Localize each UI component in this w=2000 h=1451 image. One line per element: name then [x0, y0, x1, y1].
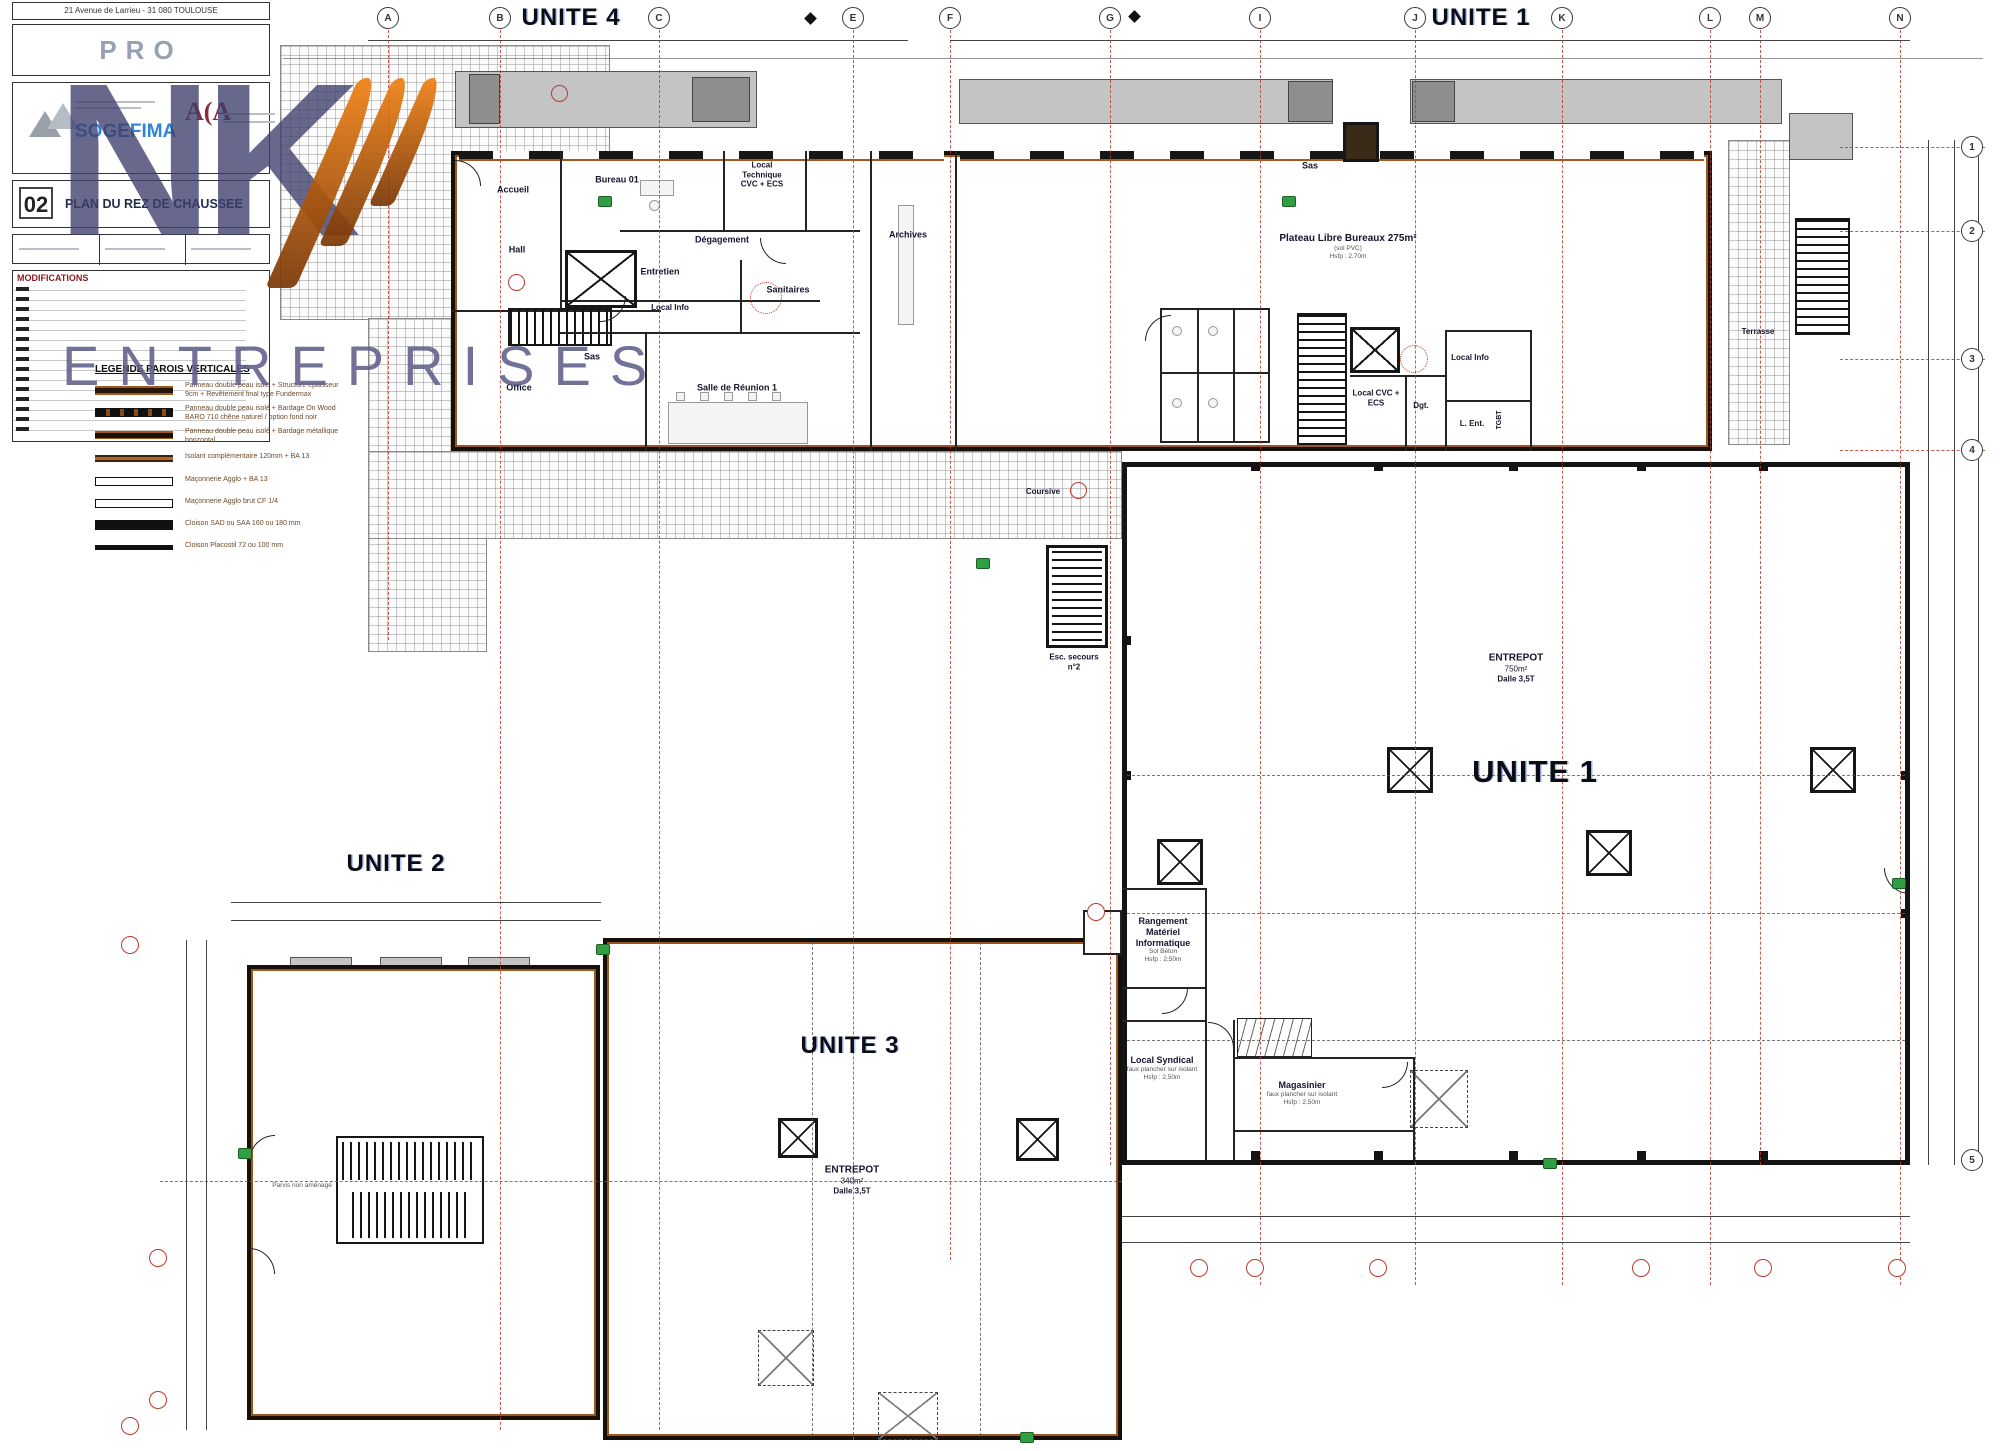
gridline-N [1900, 30, 1901, 1285]
elevator-shaft-unite1 [1350, 327, 1400, 373]
canopy-unite4-detail2 [692, 77, 750, 122]
field-line [19, 248, 79, 250]
dim-line [231, 920, 601, 921]
unite1-title-hall: UNITE 1 [1472, 754, 1598, 790]
canopy-unite1-east [1410, 79, 1782, 124]
archives-shelf [898, 205, 914, 325]
gridline-B [500, 30, 501, 1430]
gridline-warehouse-h3 [1127, 1040, 1905, 1041]
wc-fixture [1172, 326, 1182, 336]
logo-text-line [75, 107, 141, 109]
logo-text-line [75, 101, 155, 103]
room-label-sanitaires: Sanitaires [756, 285, 820, 296]
room-label-l-ent: L. Ent. [1451, 419, 1493, 429]
partition-archives-east [955, 151, 957, 451]
legend-label: Maçonnerie Agglo brut CF 1/4 [185, 498, 350, 507]
canopy-unite4-detail [469, 74, 500, 124]
partition [1405, 375, 1407, 451]
plateau-name: Plateau Libre Bureaux 275m² [1279, 233, 1416, 244]
wc-partition [1197, 308, 1199, 443]
axis-bubble [1888, 1259, 1906, 1277]
grid-bubble-right: 3 [1961, 348, 1983, 370]
stair-unite1 [1297, 313, 1347, 445]
dim-line [186, 940, 187, 1430]
entrepot-u3-name: ENTREPOT [825, 1164, 879, 1175]
legend-swatch-agglo-ba13 [95, 477, 173, 486]
legend-swatch-panneau-onwood [95, 408, 173, 417]
partition [805, 151, 807, 231]
skylight-u1 [1586, 830, 1632, 876]
room-label-magasinier: Magasinier faux plancher sur isolant Hsf… [1257, 1080, 1347, 1106]
room-label-dgt: Dgt. [1406, 401, 1436, 411]
axis-bubble [149, 1249, 167, 1267]
axis-bubble [1369, 1259, 1387, 1277]
gridline-L [1710, 30, 1711, 1285]
titleblock-sheet: 02 PLAN DU REZ DE CHAUSSEE [12, 180, 270, 228]
partition [1445, 330, 1532, 332]
partition [1445, 400, 1530, 402]
dim-line [206, 940, 207, 1430]
dim-line [368, 40, 908, 41]
canopy-terrace [1789, 113, 1853, 160]
grid-bubble-top: F [939, 7, 961, 29]
skylight-u3 [1016, 1118, 1059, 1161]
axis-bubble [1190, 1259, 1208, 1277]
legend-swatch-panneau-metal [95, 431, 173, 439]
gridline-G [1110, 30, 1111, 1165]
titleblock-phase: PRO [12, 24, 270, 76]
escape-stair-steps [1052, 551, 1102, 642]
sheet-number: 02 [19, 187, 53, 219]
legend-swatch-isolant [95, 455, 173, 462]
ramp-hatched [1237, 1018, 1312, 1057]
dim-line [1122, 1242, 1910, 1243]
gridline-u3-v2 [980, 942, 981, 1436]
wc-partition [1160, 372, 1270, 374]
partition [1350, 375, 1447, 377]
entrepot-u3-label: ENTREPOT 340m² Dalle 3,5T [797, 1164, 907, 1195]
wc-partition [1233, 308, 1235, 443]
rangement-sub2: Hsfp : 2,50m [1124, 956, 1202, 964]
room-label-esc-secours: Esc. secours n°2 [1042, 652, 1106, 671]
entrepot-u1-slab: Dalle 3,5T [1461, 674, 1571, 684]
door-tag [1892, 878, 1906, 889]
legend-swatch-agglo-brut [95, 499, 173, 508]
dim-line [231, 902, 601, 903]
gridline-J [1415, 30, 1416, 1285]
magasinier-sub2: Hsfp : 2,50m [1257, 1098, 1347, 1106]
wc-fixture [1208, 326, 1218, 336]
room-label-parvis: Parvis non aménagé [267, 1182, 337, 1190]
room-label-plateau: Plateau Libre Bureaux 275m² (sol PVC) Hs… [1263, 233, 1433, 261]
plateau-sub2: Hsfp : 2,70m [1263, 253, 1433, 261]
entrepot-u1-area: 750m² [1461, 664, 1571, 674]
axis-bubble [149, 1391, 167, 1409]
room-label-coursive: Coursive [1013, 487, 1073, 497]
canopy-unite1-west [959, 79, 1333, 124]
plateau-sub1: (sol PVC) [1263, 245, 1433, 253]
room-label-tgbt: TGBT [1496, 400, 1504, 440]
partition [560, 151, 562, 311]
grid-bubble-top: E [842, 7, 864, 29]
legend-swatch-panneau-fundermax [95, 386, 173, 395]
office-band-windows-east [960, 151, 1704, 161]
room-label-entretien: Entretien [630, 267, 690, 278]
floor-plan-sheet: 21 Avenue de Larrieu - 31 080 TOULOUSE P… [0, 0, 2000, 1451]
canopy-unite1-detail [1288, 81, 1333, 122]
axis-bubble [121, 1417, 139, 1435]
local-syndical-sub2: Hsfp : 2,50m [1125, 1073, 1199, 1081]
wc-fixture [1172, 398, 1182, 408]
titleblock-logos: SOGEFIMA A(A [12, 82, 270, 174]
grid-bubble-top: M [1749, 7, 1771, 29]
north-marker-icon [804, 12, 817, 25]
paved-walkway-coursive [368, 451, 1122, 539]
legend-label: Panneau double peau isolé + Bardage On W… [185, 405, 350, 423]
sogefima-logo: SOGEFIMA [75, 121, 176, 143]
gridline-warehouse-h2 [1127, 913, 1905, 914]
axis-bubble [1246, 1259, 1264, 1277]
unite2-stair-lower [352, 1192, 470, 1238]
canopy-unite1-detail2 [1412, 81, 1455, 122]
local-syndical-name: Local Syndical [1130, 1055, 1193, 1065]
legend-title: LEGENDE PAROIS VERTICALES [95, 364, 250, 375]
room-label-local-cvc: Local CVC + ECS [1351, 388, 1401, 407]
legend-label: Panneau double peau isolé + Structure ép… [185, 382, 350, 400]
service-partition [1205, 888, 1207, 1160]
dim-line [1928, 140, 1929, 1165]
meeting-table [668, 402, 808, 444]
dim-line [950, 40, 1910, 41]
service-partition [1122, 1020, 1207, 1022]
rangement-sub1: Sol Béton [1124, 948, 1202, 956]
paved-terrace-east [1728, 140, 1790, 445]
partition [1445, 330, 1447, 451]
door-tag [238, 1148, 252, 1159]
pmr-turning-circle-2 [1400, 345, 1428, 373]
dashed-skylight-u3 [758, 1330, 814, 1386]
room-label-degagement: Dégagement [680, 235, 764, 246]
field-divider [99, 235, 100, 265]
grid-bubble-top: C [648, 7, 670, 29]
legend-label: Cloison Placostil 72 ou 100 mm [185, 542, 350, 551]
entrance-vestibule-unite1 [1343, 122, 1379, 162]
dashed-skylight-u3 [878, 1392, 938, 1440]
entrepot-u1-name: ENTREPOT [1489, 652, 1543, 663]
door-tag [1020, 1432, 1034, 1443]
logo-text-line [223, 121, 275, 123]
room-label-accueil: Accueil [483, 185, 543, 196]
door-tag [976, 558, 990, 569]
room-label-local-info4: Local Info [650, 303, 690, 313]
partition [645, 332, 647, 451]
dashed-skylight-u1 [1410, 1070, 1468, 1128]
axis-bubble [1087, 903, 1105, 921]
gridline-A [388, 30, 389, 640]
unite1-title-top: UNITE 1 [1431, 4, 1530, 32]
room-label-rangement: Rangement Matériel Informatique Sol Béto… [1124, 916, 1202, 964]
north-marker-icon [1128, 10, 1141, 23]
grid-bubble-right: 1 [1961, 136, 1983, 158]
legend-swatch-placostil [95, 545, 173, 550]
skylight-u1 [1157, 839, 1203, 885]
grid-bubble-top: I [1249, 7, 1271, 29]
stair-unite4 [508, 308, 612, 346]
legend-label: Cloison SAD ou SAA 160 ou 180 mm [185, 520, 350, 529]
magasinier-sub1: faux plancher sur isolant [1257, 1091, 1347, 1099]
modifications-header: MODIFICATIONS [17, 273, 88, 283]
room-label-terrasse: Terrasse [1728, 327, 1788, 337]
door-tag [1282, 196, 1296, 207]
room-label-archives: Archives [878, 230, 938, 241]
field-line [191, 248, 251, 250]
unite2-stair-upper [342, 1142, 478, 1180]
gridline-E [853, 30, 854, 1440]
room-label-salle-reunion: Salle de Réunion 1 [677, 383, 797, 394]
grid-bubble-top: G [1099, 7, 1121, 29]
rangement-name: Rangement Matériel Informatique [1136, 916, 1191, 948]
door-tag [596, 944, 610, 955]
room-label-local-technique: Local Technique CVC + ECS [735, 161, 789, 190]
legend-swatch-cloison-sad [95, 520, 173, 530]
entrepot-u1-label: ENTREPOT 750m² Dalle 3,5T [1461, 652, 1571, 683]
unite4-title: UNITE 4 [521, 4, 620, 32]
dim-line [283, 58, 1983, 59]
grid-bubble-top: B [489, 7, 511, 29]
partition [723, 151, 725, 231]
ref-marker [551, 85, 568, 102]
entrepot-u3-slab: Dalle 3,5T [797, 1186, 907, 1196]
dim-line [1122, 1216, 1910, 1217]
legend-label: Panneau double peau isolé + Bardage méta… [185, 428, 350, 446]
titleblock-fields [12, 234, 270, 264]
field-line [105, 248, 165, 250]
room-label-bureau01: Bureau 01 [585, 175, 649, 186]
ref-marker [1070, 482, 1087, 499]
partition-archives-west [870, 151, 872, 451]
door-tag [598, 196, 612, 207]
grid-bubble-top: J [1404, 7, 1426, 29]
grid-bubble-right: 2 [1961, 220, 1983, 242]
axis-bubble [1754, 1259, 1772, 1277]
sheet-title: PLAN DU REZ DE CHAUSSEE [65, 197, 243, 211]
dim-line [1978, 140, 1979, 1165]
grid-bubble-right: 5 [1961, 1149, 1983, 1171]
skylight-u1 [1810, 747, 1856, 793]
legend-label: Isolant complémentaire 120mm + BA 13 [185, 453, 350, 462]
grid-bubble-top: N [1889, 7, 1911, 29]
partition [740, 260, 742, 332]
logo-text-line [223, 113, 275, 115]
room-label-local-info1: Local Info [1448, 353, 1492, 363]
entrepot-u3-area: 340m² [797, 1176, 907, 1186]
room-label-office: Office [494, 383, 544, 394]
grid-bubble-top: A [377, 7, 399, 29]
room-label-local-syndical: Local Syndical faux plancher sur isolant… [1125, 1055, 1199, 1081]
partition [1530, 330, 1532, 451]
door-tag [1543, 1158, 1557, 1169]
service-partition [1122, 888, 1207, 890]
room-label-hall: Hall [497, 245, 537, 256]
local-syndical-sub1: faux plancher sur isolant [1125, 1066, 1199, 1074]
unite1-warehouse-shell [1122, 462, 1910, 1165]
gridline-M [1760, 30, 1761, 1165]
axis-bubble [1632, 1259, 1650, 1277]
ref-marker [508, 274, 525, 291]
unite3-title: UNITE 3 [800, 1032, 899, 1060]
dim-line [1954, 140, 1955, 1165]
legend-label: Maçonnerie Agglo + BA 13 [185, 476, 350, 485]
partition [620, 230, 860, 232]
skylight-u1 [1387, 747, 1433, 793]
grid-bubble-top: K [1551, 7, 1573, 29]
room-label-sas1: Sas [1293, 161, 1327, 172]
wc-fixture [1208, 398, 1218, 408]
gridline-F [950, 30, 951, 1260]
stair-terrace [1795, 218, 1850, 335]
field-divider [185, 235, 186, 265]
gridline-C [659, 30, 660, 1430]
axis-bubble [121, 936, 139, 954]
grid-bubble-right: 4 [1961, 439, 1983, 461]
unite2-title: UNITE 2 [346, 850, 445, 878]
magasinier-name: Magasinier [1278, 1080, 1325, 1090]
grid-bubble-top: L [1699, 7, 1721, 29]
room-label-sas4: Sas [574, 352, 610, 363]
titleblock-address: 21 Avenue de Larrieu - 31 080 TOULOUSE [12, 2, 270, 20]
